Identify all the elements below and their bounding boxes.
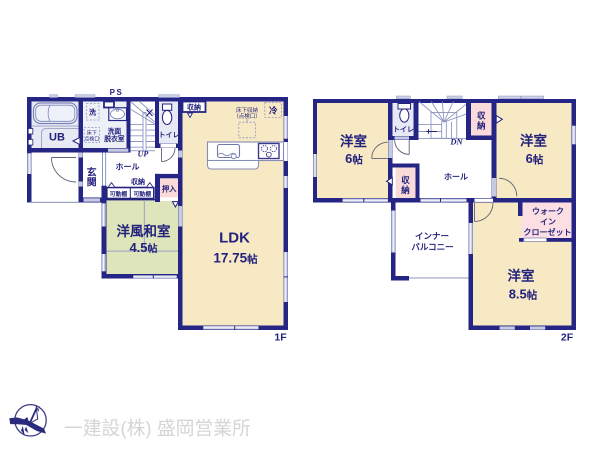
svg-text:トイレ: トイレ: [393, 126, 414, 134]
svg-text:納: 納: [401, 185, 410, 195]
svg-text:冷: 冷: [269, 105, 278, 115]
svg-text:洋室: 洋室: [520, 133, 548, 149]
svg-text:バルコニー: バルコニー: [411, 242, 453, 252]
svg-text:関: 関: [87, 176, 97, 188]
svg-text:DN: DN: [449, 137, 463, 147]
svg-text:脱衣室: 脱衣室: [104, 134, 125, 143]
svg-text:UP: UP: [138, 149, 149, 158]
svg-text:洗面: 洗面: [108, 127, 122, 136]
svg-text:洋室: 洋室: [340, 133, 367, 149]
svg-text:インナー: インナー: [415, 231, 449, 241]
svg-text:トイレ: トイレ: [159, 131, 180, 139]
svg-text:洋室: 洋室: [508, 268, 536, 284]
svg-text:納: 納: [477, 121, 486, 131]
svg-text:PS: PS: [110, 88, 124, 97]
svg-text:ホール: ホール: [444, 173, 468, 182]
svg-text:点検口: 点検口: [84, 136, 99, 143]
svg-text:可動棚: 可動棚: [134, 190, 152, 198]
svg-text:6帖: 6帖: [526, 151, 544, 166]
svg-text:収納: 収納: [131, 177, 145, 186]
svg-text:8.5帖: 8.5帖: [509, 287, 538, 302]
svg-text:17.75帖: 17.75帖: [213, 251, 258, 266]
svg-text:収納: 収納: [187, 103, 201, 112]
svg-text:6帖: 6帖: [345, 151, 363, 166]
svg-text:床下: 床下: [87, 129, 97, 136]
svg-text:イン: イン: [540, 218, 556, 227]
svg-text:ウォーク: ウォーク: [532, 206, 564, 216]
svg-text:ホール: ホール: [116, 162, 140, 171]
svg-text:2F: 2F: [561, 332, 574, 344]
svg-text:収: 収: [401, 175, 410, 185]
svg-text:一建設(株) 盛岡営業所: 一建設(株) 盛岡営業所: [64, 418, 251, 439]
svg-text:クローゼット: クローゼット: [524, 227, 572, 237]
svg-text:押入: 押入: [162, 184, 177, 193]
svg-text:1F: 1F: [274, 332, 287, 344]
svg-text:洗: 洗: [89, 108, 96, 117]
svg-text:洋風和室: 洋風和室: [117, 223, 171, 239]
svg-text:可動棚: 可動棚: [110, 190, 128, 198]
svg-text:収: 収: [477, 111, 486, 121]
svg-text:床下収納: 床下収納: [236, 106, 259, 114]
svg-text:UB: UB: [49, 132, 65, 144]
svg-text:LDK: LDK: [219, 230, 250, 247]
